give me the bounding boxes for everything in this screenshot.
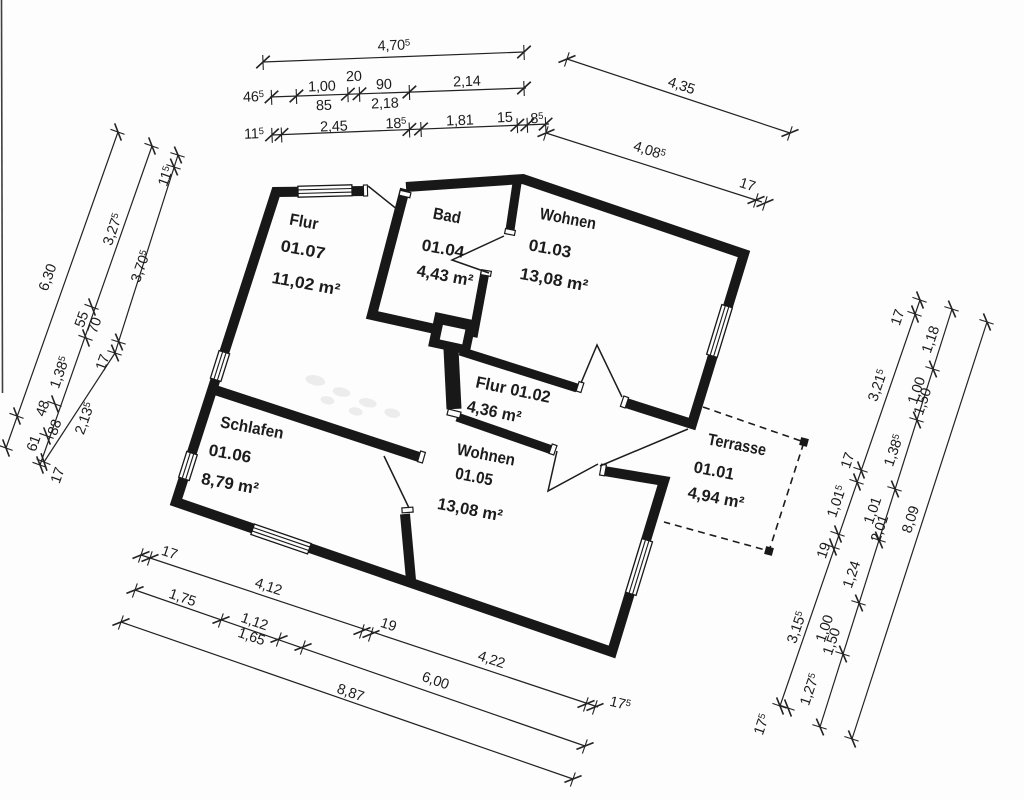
svg-text:20: 20: [346, 69, 362, 86]
svg-text:15: 15: [497, 110, 513, 127]
svg-text:90: 90: [376, 77, 392, 94]
svg-text:2,18: 2,18: [371, 96, 399, 113]
svg-text:1,81: 1,81: [446, 112, 474, 129]
svg-text:2,45: 2,45: [320, 118, 348, 135]
svg-text:2,14: 2,14: [453, 74, 481, 91]
svg-text:1,00: 1,00: [308, 79, 336, 96]
svg-text:85: 85: [316, 98, 332, 115]
